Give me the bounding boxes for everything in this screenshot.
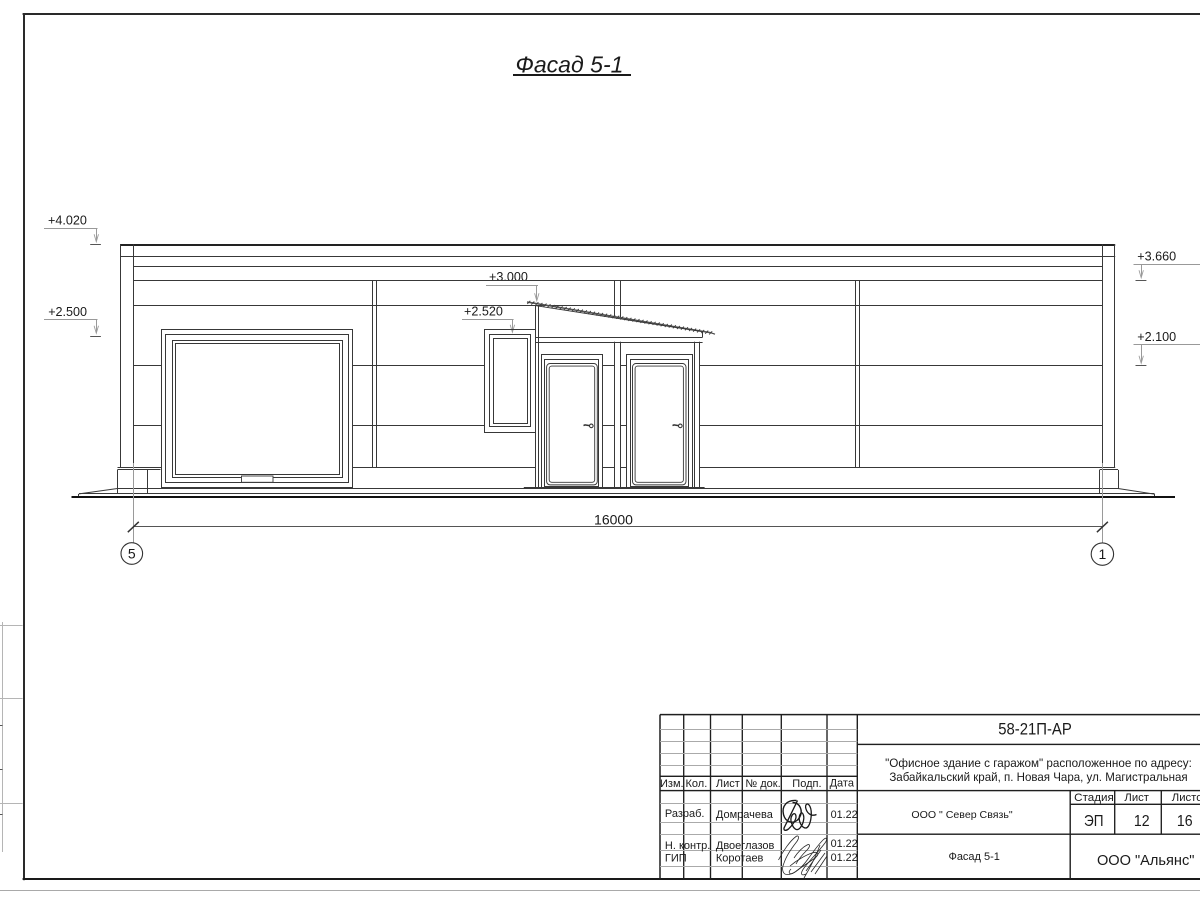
- svg-text:58-21П-АР: 58-21П-АР: [998, 721, 1072, 739]
- svg-text:№ док.: № док.: [745, 778, 780, 790]
- svg-text:Лист: Лист: [1124, 792, 1149, 804]
- svg-text:ЭП: ЭП: [1084, 813, 1104, 830]
- svg-text:Стадия: Стадия: [1074, 792, 1114, 804]
- svg-text:Подп.: Подп.: [792, 778, 821, 790]
- svg-text:+2.500: +2.500: [48, 305, 87, 319]
- svg-text:Домрачева: Домрачева: [716, 809, 774, 821]
- svg-text:01.22: 01.22: [831, 809, 858, 821]
- svg-text:Коротаев: Коротаев: [716, 852, 764, 864]
- svg-text:Кол.: Кол.: [686, 778, 708, 790]
- svg-text:"Офисное здание с гаражом" рас: "Офисное здание с гаражом" расположенное…: [885, 757, 1192, 770]
- svg-text:ГИП: ГИП: [665, 852, 687, 864]
- svg-text:16000: 16000: [594, 512, 633, 528]
- svg-text:Листов: Листов: [1172, 792, 1200, 804]
- svg-text:Двоеглазов: Двоеглазов: [716, 840, 775, 852]
- svg-text:Лист: Лист: [716, 778, 740, 790]
- svg-text:Н. контр.: Н. контр.: [665, 840, 710, 852]
- svg-text:+4.020: +4.020: [48, 214, 87, 228]
- svg-text:Забайкальский край, п. Новая Ч: Забайкальский край, п. Новая Чара, ул. М…: [889, 771, 1187, 784]
- svg-text:+3.000: +3.000: [489, 270, 528, 284]
- svg-text:5: 5: [128, 546, 136, 562]
- svg-text:Разраб.: Разраб.: [665, 808, 705, 820]
- svg-text:12: 12: [1134, 813, 1150, 830]
- svg-text:ООО " Север Связь": ООО " Север Связь": [911, 809, 1013, 821]
- svg-text:Дата: Дата: [830, 778, 855, 790]
- svg-text:1: 1: [1099, 546, 1107, 562]
- svg-text:+2.520: +2.520: [464, 305, 503, 319]
- svg-text:+2.100: +2.100: [1137, 330, 1176, 344]
- svg-text:Фасад 5-1: Фасад 5-1: [516, 51, 624, 77]
- svg-text:16: 16: [1177, 813, 1193, 830]
- svg-text:Фасад 5-1: Фасад 5-1: [948, 851, 999, 863]
- svg-text:ООО "Альянс": ООО "Альянс": [1097, 852, 1195, 869]
- svg-text:01.22: 01.22: [831, 838, 858, 850]
- svg-text:Изм.: Изм.: [660, 778, 684, 790]
- svg-text:01.22: 01.22: [831, 852, 858, 864]
- svg-text:+3.660: +3.660: [1137, 250, 1176, 264]
